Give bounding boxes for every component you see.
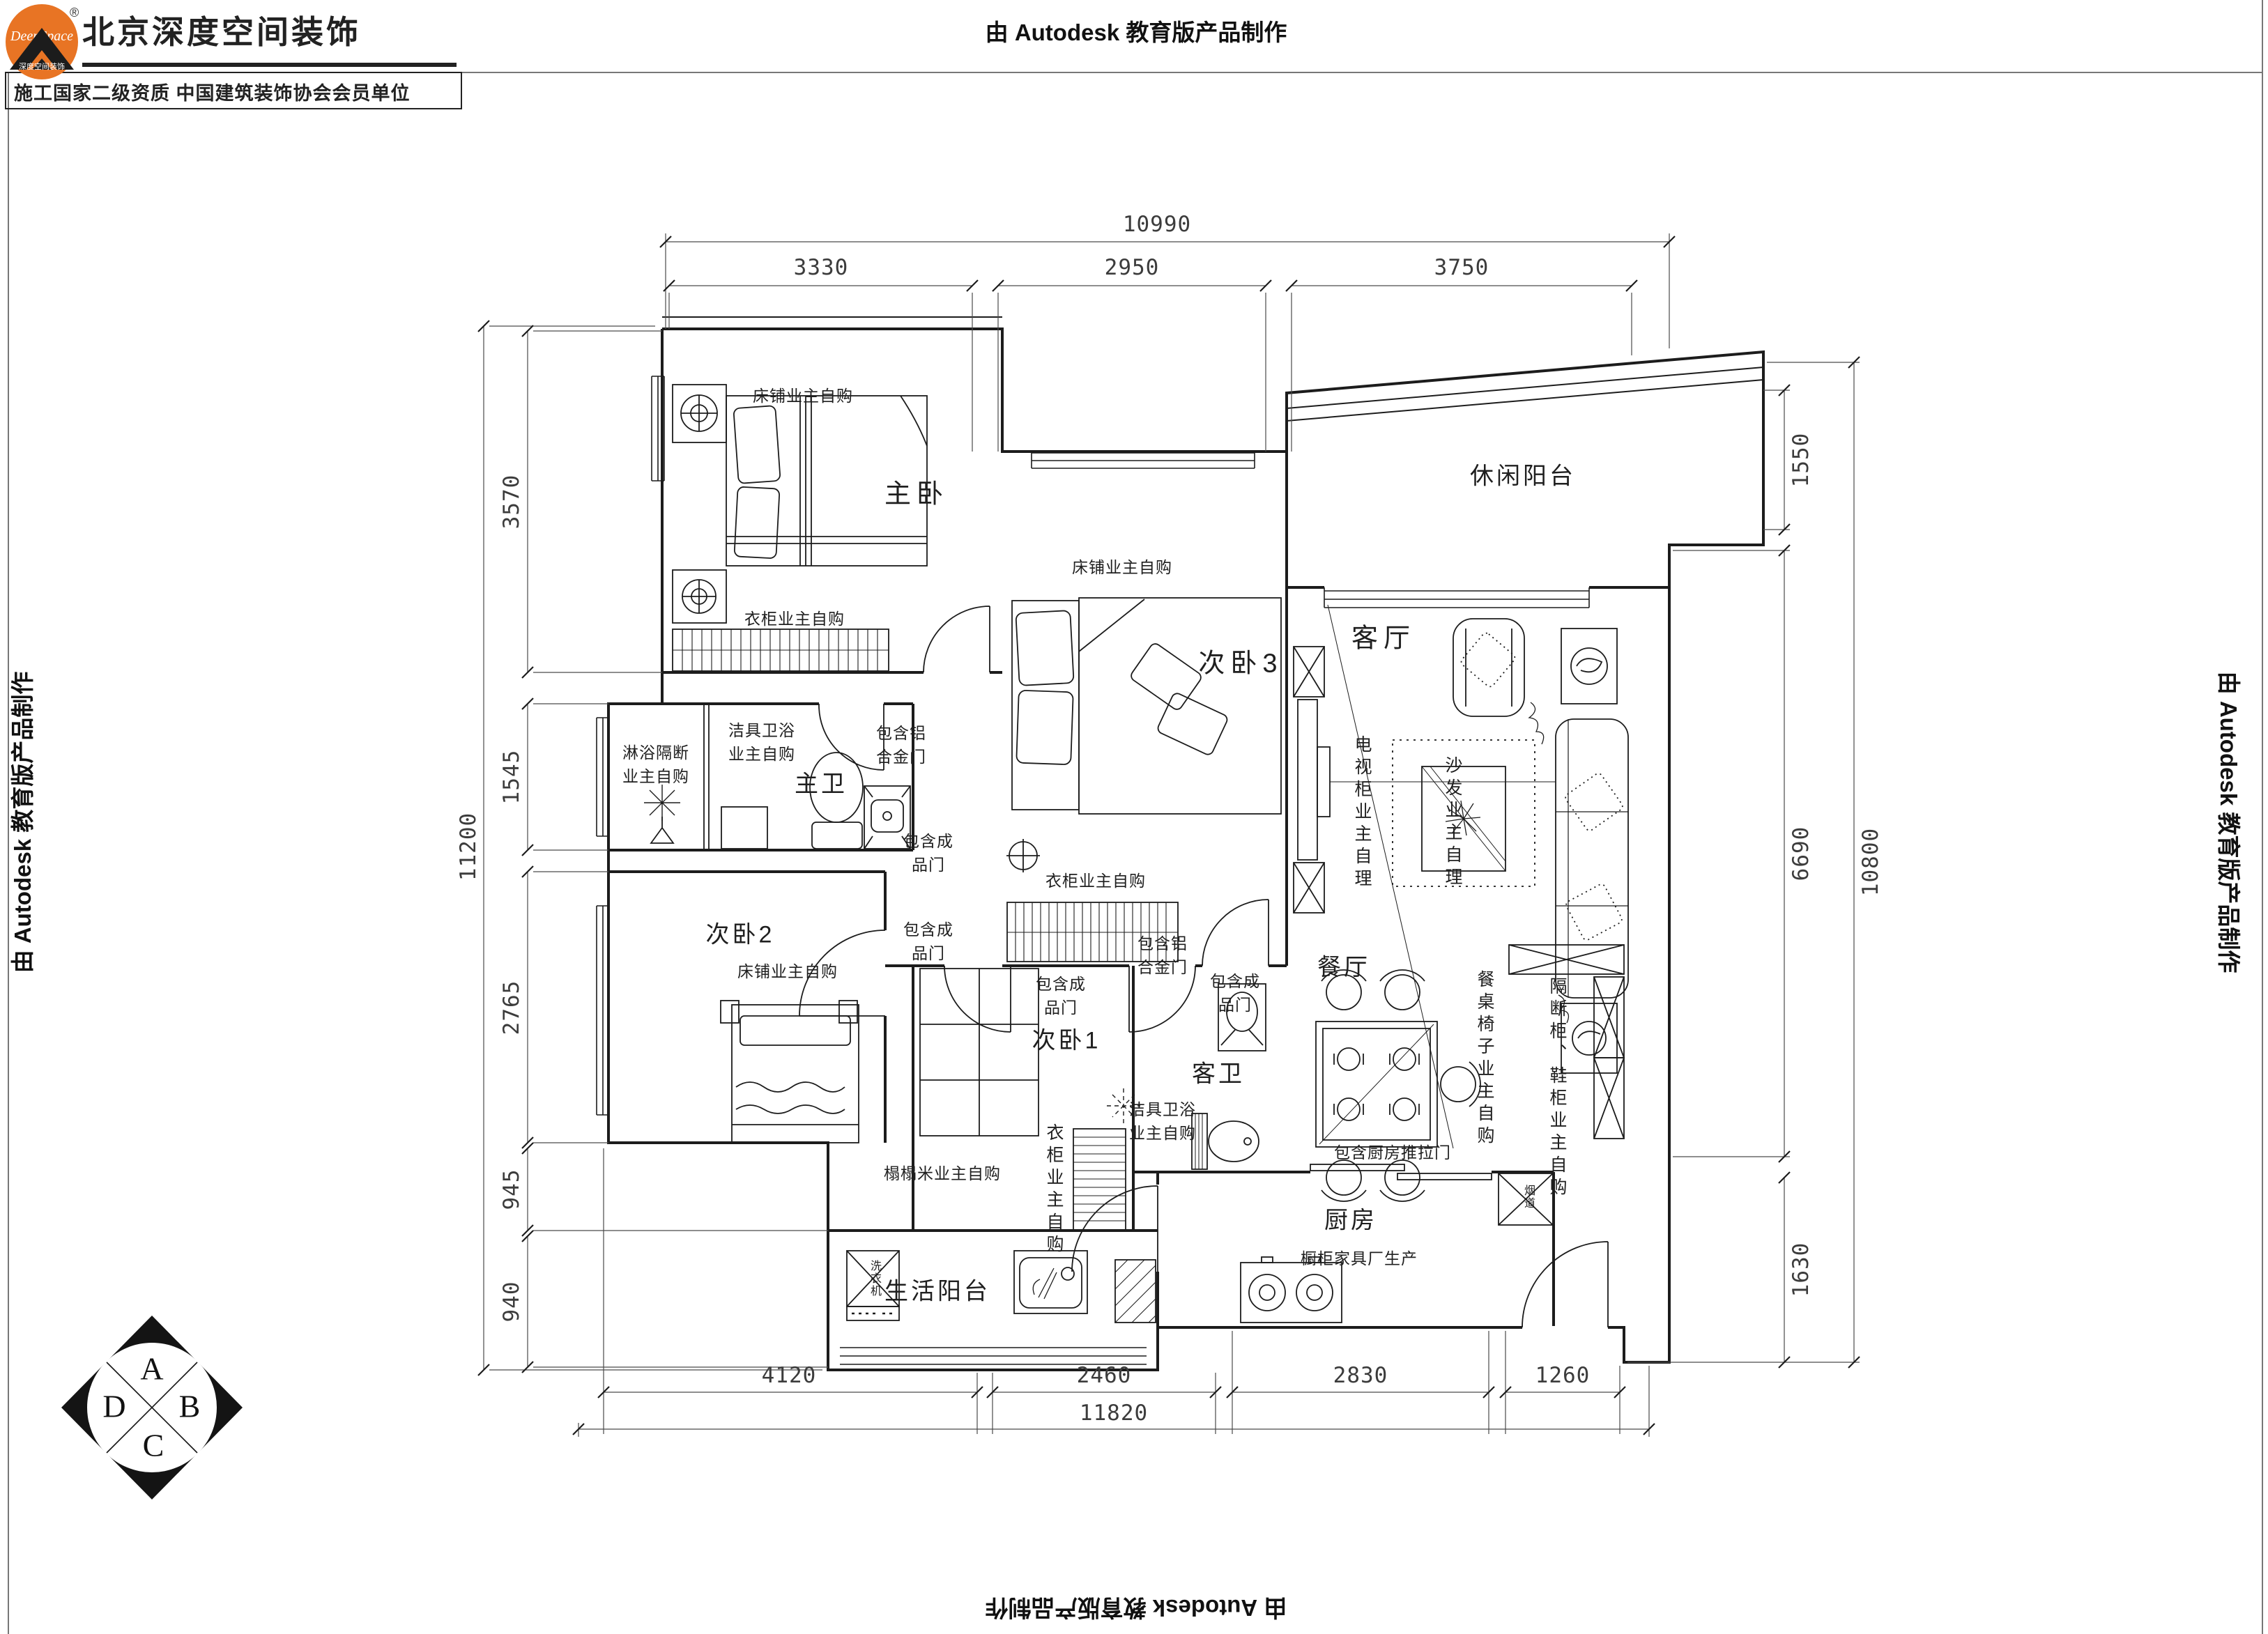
note-finished-door-bed3-line2: 品门 xyxy=(1218,992,1252,1015)
note-washer: 洗衣机 xyxy=(866,1260,882,1297)
dim-left-total: 11200 xyxy=(456,812,481,881)
compass-letter-a: A xyxy=(140,1350,163,1387)
note-wardrobe-master: 衣柜业主自购 xyxy=(744,606,845,629)
dim-top-total: 10990 xyxy=(1123,212,1191,237)
note-finished-door-hall-line2: 品门 xyxy=(912,851,945,875)
dim-bottom-1: 4120 xyxy=(762,1363,817,1388)
dim-top-2: 2950 xyxy=(1105,255,1160,280)
dim-right-1: 1550 xyxy=(1788,433,1814,488)
dim-left-2: 1545 xyxy=(499,750,524,805)
note-finished-door-bed2-line1: 包含成 xyxy=(903,916,953,940)
dim-right-2: 6690 xyxy=(1788,826,1814,881)
note-wardrobe-bed1: 衣柜业主自购 xyxy=(1041,1123,1066,1257)
company-credentials: 施工国家二级资质 中国建筑装饰协会会员单位 xyxy=(14,78,411,105)
room-label-living-room: 客厅 xyxy=(1351,617,1416,655)
note-finished-door-bed1-line1: 包含成 xyxy=(1036,971,1086,994)
dining-furniture xyxy=(1316,970,1480,1201)
dim-left-1: 3570 xyxy=(499,475,524,530)
note-cabinet-factory: 橱柜家具厂生产 xyxy=(1301,1245,1418,1269)
compass-letter-b: B xyxy=(179,1388,201,1425)
note-dining-set: 餐桌椅子业主自购 xyxy=(1472,970,1497,1148)
note-shower-partition-line2: 业主自购 xyxy=(622,763,689,787)
note-alu-door-master-line1: 包含铝 xyxy=(876,720,926,743)
note-sanitary-master-line1: 洁具卫浴 xyxy=(728,717,795,741)
note-bed-bed3: 床铺业主自购 xyxy=(1072,554,1172,578)
dim-right-3: 1630 xyxy=(1788,1242,1814,1297)
sheet-frame xyxy=(6,0,2262,1634)
note-alu-door-guest-line2: 合金门 xyxy=(1137,954,1188,978)
outer-walls xyxy=(608,317,1763,1370)
note-sanitary-guest-line2: 业主自购 xyxy=(1129,1120,1196,1143)
company-name: 北京深度空间装饰 xyxy=(82,7,361,53)
compass-letter-d: D xyxy=(102,1388,125,1425)
dim-top-1: 3330 xyxy=(794,255,849,280)
dim-left-5: 940 xyxy=(499,1281,524,1323)
note-shower-partition-line1: 淋浴隔断 xyxy=(622,739,689,763)
registered-mark: ® xyxy=(70,6,79,20)
dim-left-3: 2765 xyxy=(499,980,524,1035)
watermark-top: 由 Autodesk 教育版产品制作 xyxy=(986,14,1287,47)
dim-right-total: 10800 xyxy=(1858,828,1883,896)
note-finished-door-bed2-line2: 品门 xyxy=(912,940,945,964)
watermark-right: 由 Autodesk 教育版产品制作 xyxy=(2214,672,2247,973)
note-partition-shoe-cabinet: 隔断柜、鞋柜业主自购 xyxy=(1545,977,1570,1200)
room-label-master-bedroom: 主卧 xyxy=(884,472,949,511)
dimension-ticks xyxy=(478,236,1860,1435)
note-finished-door-bed3-line1: 包含成 xyxy=(1210,968,1260,992)
bedroom1-furniture xyxy=(920,969,1126,1231)
company-logo: DeepSpace 深度空间装饰 xyxy=(6,4,78,79)
room-label-guest-bath: 客卫 xyxy=(1192,1055,1245,1089)
note-bed-bed2: 床铺业主自购 xyxy=(737,958,838,982)
floorplan-sheet: DeepSpace 深度空间装饰 xyxy=(0,0,2268,1634)
brand-underline xyxy=(82,63,457,67)
note-tv-cabinet: 电视柜业主自理 xyxy=(1349,735,1374,891)
note-flue: 烟道 xyxy=(1519,1185,1536,1210)
room-label-bedroom2: 次卧2 xyxy=(706,916,775,950)
compass-letter-c: C xyxy=(143,1427,164,1464)
watermark-bottom: 由 Autodesk 教育版产品制作 xyxy=(986,1593,1287,1626)
floorplan-drawing: DeepSpace 深度空间装饰 xyxy=(0,0,2268,1634)
note-kitchen-sliding-door: 包含厨房推拉门 xyxy=(1334,1139,1451,1163)
room-label-master-bath: 主卫 xyxy=(795,765,848,799)
balcony-railing xyxy=(1287,367,1763,421)
room-label-utility-balcony: 生活阳台 xyxy=(884,1272,990,1307)
note-finished-door-hall-line1: 包含成 xyxy=(903,828,953,851)
note-alu-door-master-line2: 合金门 xyxy=(876,743,926,767)
note-sofa: 沙发业主自理 xyxy=(1440,756,1465,890)
dim-top-3: 3750 xyxy=(1434,255,1489,280)
room-label-dining-room: 餐厅 xyxy=(1317,948,1370,982)
note-alu-door-guest-line1: 包含铝 xyxy=(1137,930,1188,954)
note-sanitary-guest-line1: 洁具卫浴 xyxy=(1129,1096,1196,1120)
room-label-bedroom3: 次卧3 xyxy=(1198,642,1282,680)
watermark-left: 由 Autodesk 教育版产品制作 xyxy=(4,672,38,973)
note-wardrobe-bed3: 衣柜业主自购 xyxy=(1045,868,1146,891)
room-label-bedroom1: 次卧1 xyxy=(1032,1022,1101,1056)
note-sanitary-master-line2: 业主自购 xyxy=(728,741,795,764)
note-bed-master: 床铺业主自购 xyxy=(753,383,853,406)
dimension-lines xyxy=(484,233,1860,1437)
dim-bottom-total: 11820 xyxy=(1080,1401,1148,1426)
note-finished-door-bed1-line2: 品门 xyxy=(1044,994,1078,1018)
dim-bottom-3: 2830 xyxy=(1333,1363,1388,1388)
note-tatami: 榻榻米业主自购 xyxy=(884,1160,1001,1184)
dim-left-4: 945 xyxy=(499,1169,524,1210)
room-label-leisure-balcony: 休闲阳台 xyxy=(1470,457,1576,491)
compass-rose xyxy=(61,1316,243,1500)
dim-bottom-2: 2460 xyxy=(1077,1363,1132,1388)
svg-text:深度空间装饰: 深度空间装饰 xyxy=(19,61,65,71)
bedroom2-furniture xyxy=(721,1001,859,1143)
dim-bottom-4: 1260 xyxy=(1535,1363,1591,1388)
room-label-kitchen: 厨房 xyxy=(1324,1201,1377,1235)
